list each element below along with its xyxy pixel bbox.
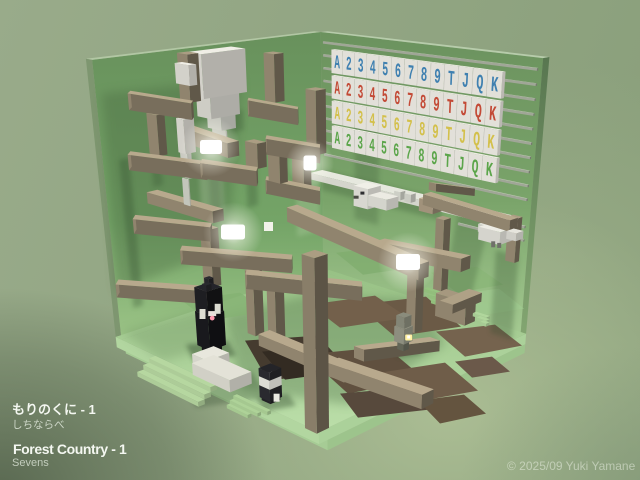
svg-text:J: J bbox=[461, 70, 469, 94]
svg-text:7: 7 bbox=[407, 89, 414, 112]
svg-text:Q: Q bbox=[471, 155, 479, 180]
svg-text:4: 4 bbox=[369, 83, 375, 107]
svg-text:8: 8 bbox=[420, 63, 427, 88]
svg-text:9: 9 bbox=[432, 121, 439, 144]
svg-text:7: 7 bbox=[406, 116, 413, 140]
svg-text:5: 5 bbox=[382, 58, 388, 82]
svg-text:9: 9 bbox=[431, 147, 438, 171]
svg-text:8: 8 bbox=[419, 118, 426, 142]
svg-text:T: T bbox=[445, 123, 453, 146]
svg-text:8: 8 bbox=[420, 92, 427, 115]
svg-text:6: 6 bbox=[394, 87, 401, 111]
svg-text:8: 8 bbox=[418, 145, 425, 169]
svg-text:J: J bbox=[457, 153, 465, 176]
svg-text:J: J bbox=[460, 99, 468, 124]
svg-text:6: 6 bbox=[394, 113, 400, 137]
svg-text:3: 3 bbox=[358, 55, 364, 79]
svg-text:3: 3 bbox=[358, 109, 364, 130]
svg-text:Q: Q bbox=[474, 101, 482, 126]
svg-text:T: T bbox=[444, 150, 452, 174]
svg-text:A: A bbox=[334, 79, 340, 100]
svg-text:J: J bbox=[459, 125, 467, 150]
svg-text:3: 3 bbox=[358, 81, 364, 105]
svg-text:6: 6 bbox=[393, 139, 399, 163]
svg-text:2: 2 bbox=[346, 107, 352, 128]
svg-text:2: 2 bbox=[346, 132, 352, 153]
svg-text:3: 3 bbox=[357, 134, 363, 155]
svg-text:2: 2 bbox=[346, 80, 352, 102]
svg-text:4: 4 bbox=[370, 57, 376, 81]
svg-text:T: T bbox=[446, 95, 454, 120]
svg-text:5: 5 bbox=[381, 111, 387, 135]
svg-text:Q: Q bbox=[473, 128, 481, 153]
svg-text:4: 4 bbox=[369, 137, 375, 158]
svg-text:A: A bbox=[335, 105, 341, 126]
svg-text:2: 2 bbox=[346, 53, 352, 77]
svg-text:4: 4 bbox=[369, 109, 375, 133]
svg-text:9: 9 bbox=[433, 93, 440, 118]
svg-text:7: 7 bbox=[405, 142, 412, 166]
svg-text:5: 5 bbox=[382, 85, 388, 109]
svg-text:5: 5 bbox=[381, 139, 387, 160]
svg-text:A: A bbox=[334, 51, 340, 75]
svg-text:A: A bbox=[335, 129, 341, 150]
svg-text:K: K bbox=[485, 158, 493, 183]
svg-text:T: T bbox=[447, 68, 455, 93]
svg-text:7: 7 bbox=[407, 61, 414, 86]
svg-text:9: 9 bbox=[434, 65, 441, 90]
svg-text:Q: Q bbox=[476, 72, 484, 96]
svg-text:6: 6 bbox=[395, 60, 402, 83]
